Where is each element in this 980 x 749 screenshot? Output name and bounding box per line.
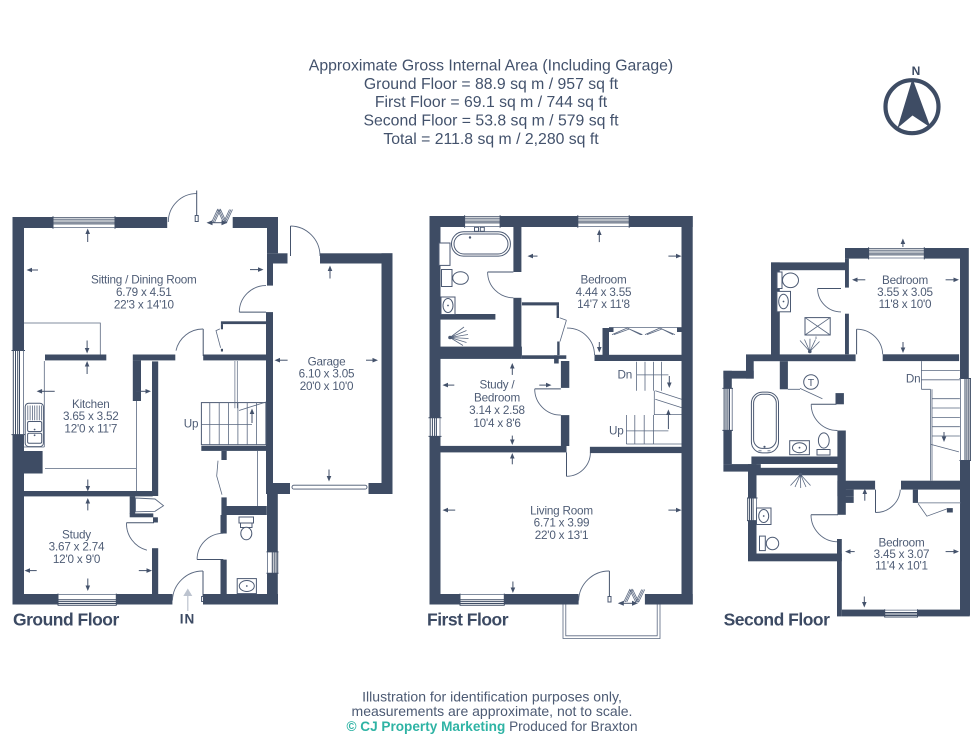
svg-text:12'0 x 9'0: 12'0 x 9'0 bbox=[53, 553, 101, 566]
svg-text:IN: IN bbox=[180, 612, 196, 627]
svg-text:Sitting / Dining Room: Sitting / Dining Room bbox=[91, 274, 197, 287]
svg-text:6.79 x 4.51: 6.79 x 4.51 bbox=[116, 286, 172, 299]
svg-text:Illustration for identificatio: Illustration for identification purposes… bbox=[362, 689, 622, 705]
svg-text:Ground Floor: Ground Floor bbox=[13, 609, 119, 629]
svg-text:Bedroom: Bedroom bbox=[474, 392, 520, 405]
svg-text:12'0 x 11'7: 12'0 x 11'7 bbox=[64, 423, 117, 436]
svg-text:First Floor = 69.1 sq m / 744: First Floor = 69.1 sq m / 744 sq ft bbox=[375, 94, 608, 111]
svg-text:Garage: Garage bbox=[308, 355, 346, 368]
svg-text:Kitchen: Kitchen bbox=[72, 398, 110, 411]
svg-text:11'4 x 10'1: 11'4 x 10'1 bbox=[875, 560, 928, 573]
svg-text:Study /: Study / bbox=[480, 379, 516, 392]
svg-text:Total = 211.8 sq m / 2,280 sq: Total = 211.8 sq m / 2,280 sq ft bbox=[383, 131, 599, 148]
svg-text:Second Floor: Second Floor bbox=[724, 609, 831, 629]
svg-text:4.44 x 3.55: 4.44 x 3.55 bbox=[576, 286, 632, 299]
svg-text:First Floor: First Floor bbox=[427, 609, 509, 629]
svg-text:Approximate Gross Internal Are: Approximate Gross Internal Area (Includi… bbox=[309, 58, 673, 75]
svg-text:11'8 x 10'0: 11'8 x 10'0 bbox=[879, 298, 932, 311]
svg-text:measurements are approximate,: measurements are approximate, not to sca… bbox=[352, 703, 633, 719]
svg-text:Ground Floor = 88.9 sq m / 957: Ground Floor = 88.9 sq m / 957 sq ft bbox=[364, 76, 619, 93]
svg-text:3.14 x 2.58: 3.14 x 2.58 bbox=[469, 404, 525, 417]
svg-text:3.65 x 3.52: 3.65 x 3.52 bbox=[63, 410, 119, 423]
svg-text:6.71 x 3.99: 6.71 x 3.99 bbox=[534, 517, 590, 530]
svg-text:Dn: Dn bbox=[906, 373, 921, 386]
svg-text:T: T bbox=[808, 377, 815, 389]
svg-text:22'0 x 13'1: 22'0 x 13'1 bbox=[535, 529, 589, 542]
svg-text:N: N bbox=[912, 64, 921, 78]
svg-text:Living Room: Living Room bbox=[530, 505, 593, 518]
svg-text:20'0 x 10'0: 20'0 x 10'0 bbox=[300, 380, 354, 393]
svg-text:Bedroom: Bedroom bbox=[580, 273, 626, 286]
svg-text:Study: Study bbox=[62, 529, 91, 542]
svg-text:3.67 x 2.74: 3.67 x 2.74 bbox=[49, 541, 105, 554]
svg-text:Second Floor = 53.8 sq m / 579: Second Floor = 53.8 sq m / 579 sq ft bbox=[363, 113, 619, 130]
svg-text:Up: Up bbox=[609, 425, 624, 438]
svg-text:10'4 x 8'6: 10'4 x 8'6 bbox=[473, 417, 520, 430]
svg-text:Dn: Dn bbox=[618, 369, 633, 382]
svg-text:14'7 x 11'8: 14'7 x 11'8 bbox=[577, 298, 630, 311]
svg-text:6.10 x 3.05: 6.10 x 3.05 bbox=[299, 368, 355, 381]
svg-text:Up: Up bbox=[184, 418, 199, 431]
svg-text:22'3 x 14'10: 22'3 x 14'10 bbox=[114, 298, 175, 311]
svg-text:© CJ Property Marketing Produc: © CJ Property Marketing Produced for Bra… bbox=[346, 719, 637, 734]
